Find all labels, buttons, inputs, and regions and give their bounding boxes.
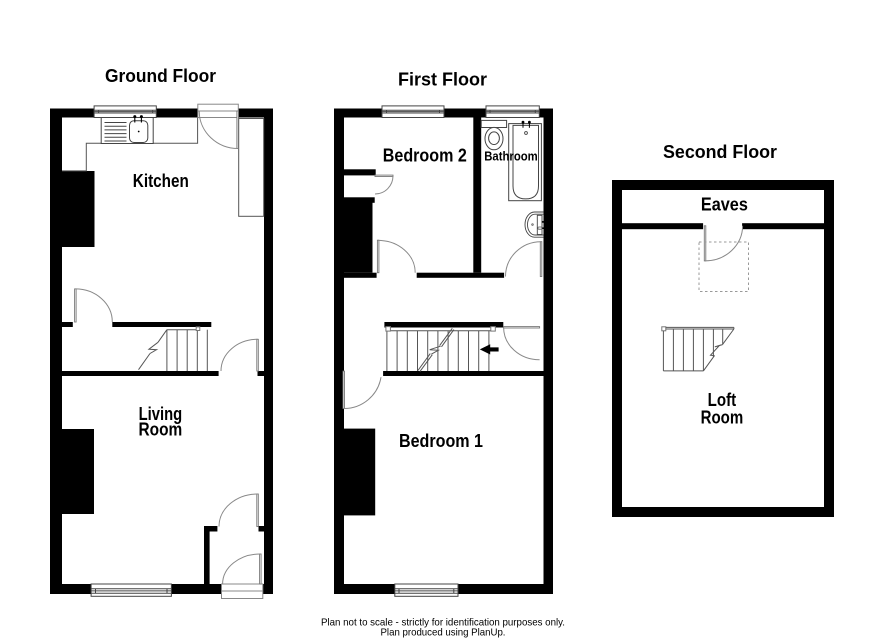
svg-text:Ground Floor: Ground Floor (105, 65, 216, 86)
svg-text:Bathroom: Bathroom (484, 149, 538, 163)
svg-text:Room: Room (139, 419, 183, 439)
svg-text:Second Floor: Second Floor (663, 141, 777, 162)
svg-text:Plan produced using PlanUp.: Plan produced using PlanUp. (381, 628, 506, 639)
svg-text:First Floor: First Floor (398, 69, 487, 90)
svg-text:Bedroom 1: Bedroom 1 (399, 431, 483, 451)
svg-text:Bedroom 2: Bedroom 2 (383, 146, 467, 166)
svg-text:Kitchen: Kitchen (133, 171, 189, 191)
svg-text:Room: Room (701, 408, 744, 428)
svg-text:Eaves: Eaves (701, 195, 748, 215)
